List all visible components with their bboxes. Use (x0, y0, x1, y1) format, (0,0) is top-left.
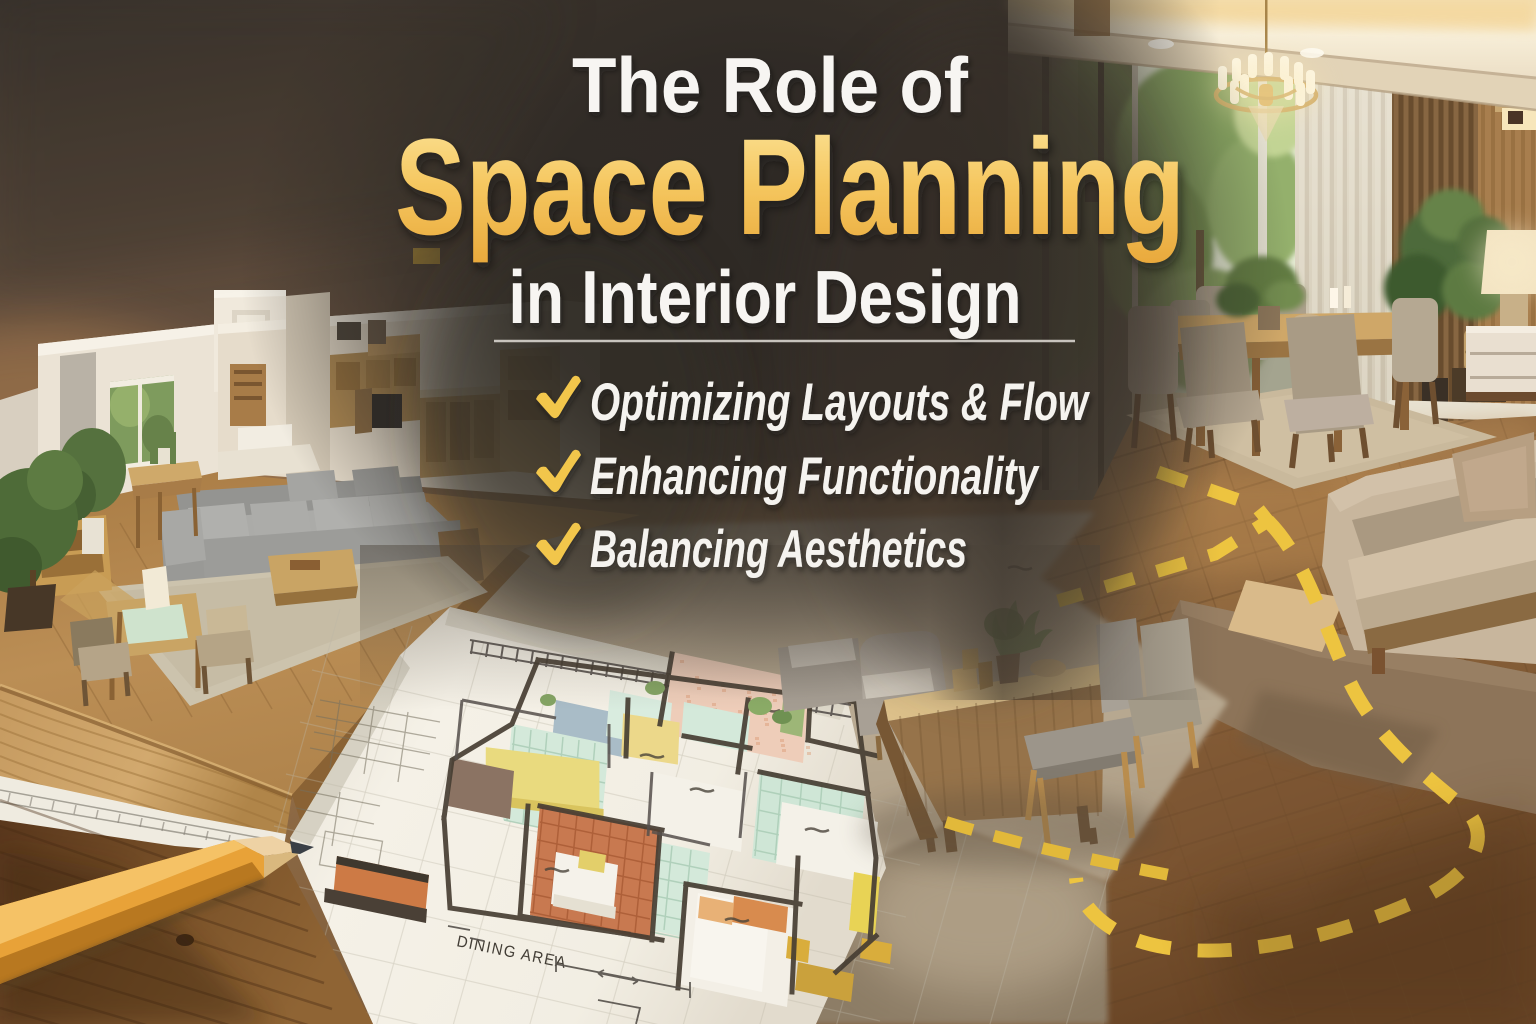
svg-text:Enhancing Functionality: Enhancing Functionality (590, 447, 1040, 506)
svg-text:Optimizing Layouts & Flow: Optimizing Layouts & Flow (590, 373, 1091, 432)
svg-text:Space Planning: Space Planning (395, 111, 1185, 264)
svg-text:in Interior Design: in Interior Design (509, 255, 1022, 339)
svg-text:Balancing Aesthetics: Balancing Aesthetics (590, 520, 967, 579)
